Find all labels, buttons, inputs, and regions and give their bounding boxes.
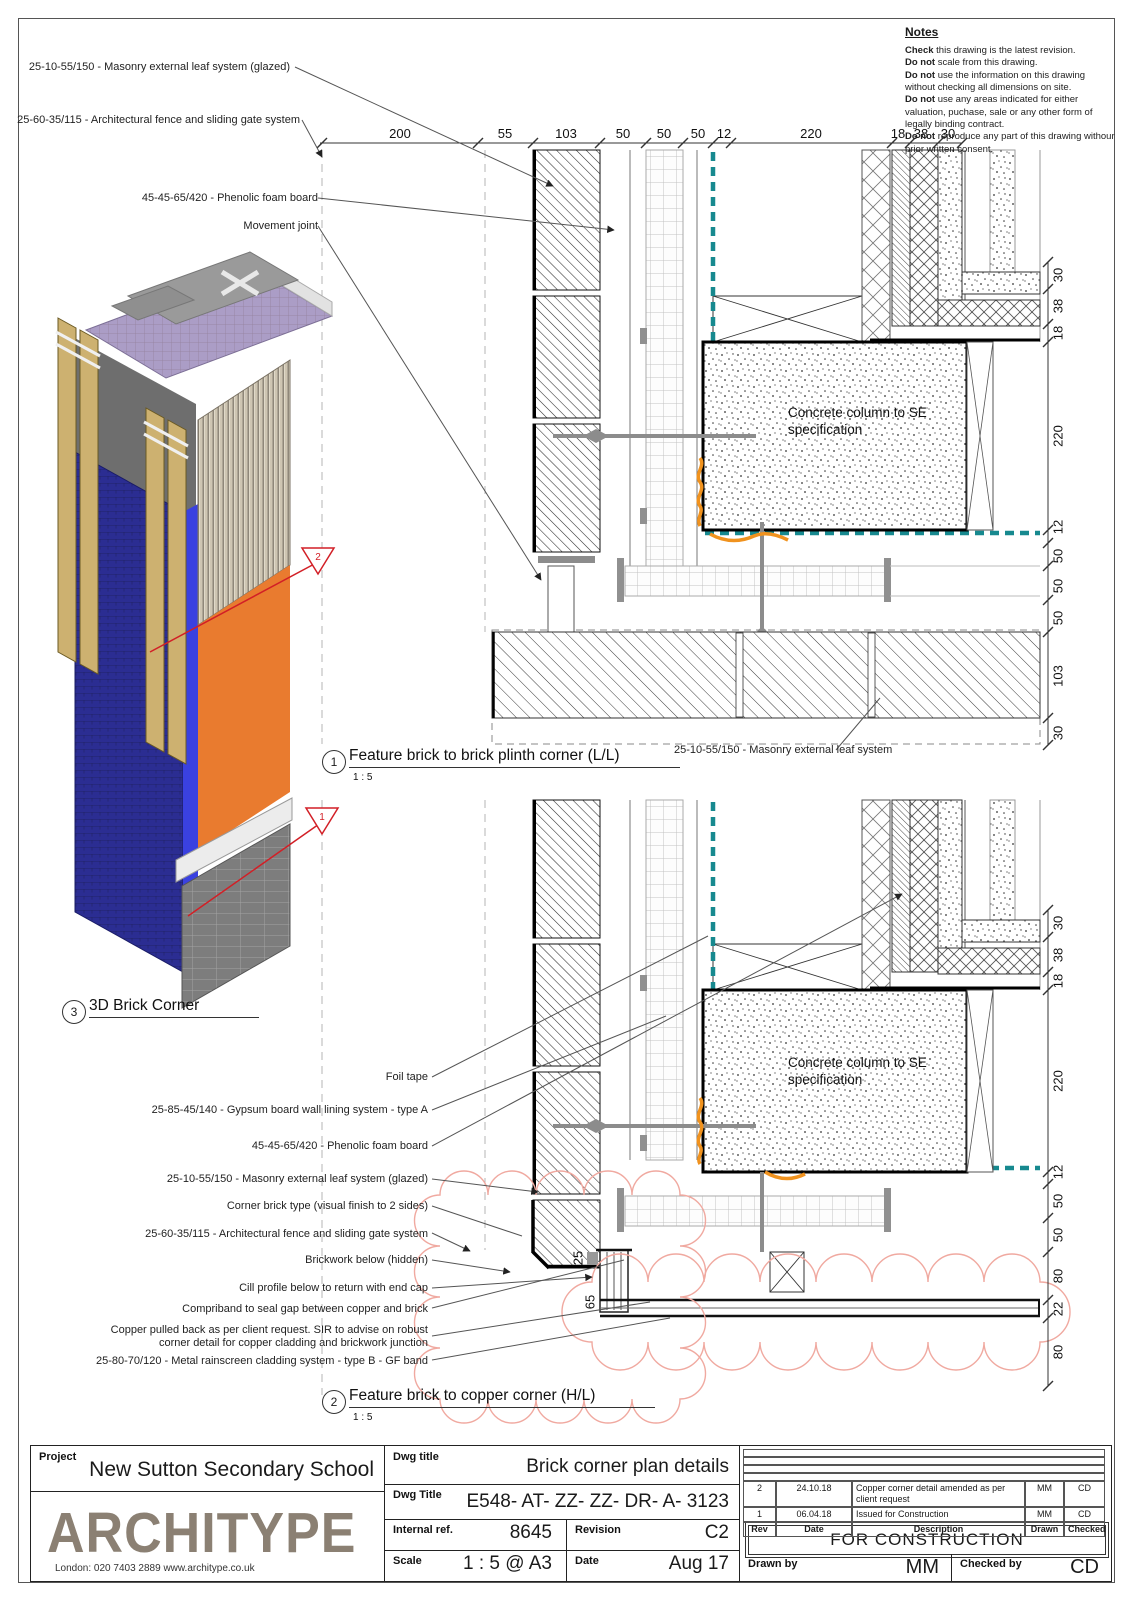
dim: 12 — [1051, 1165, 1066, 1179]
dim: 50 — [1051, 579, 1066, 593]
section-flag-upper: 2 — [315, 552, 321, 563]
detail1-scale: 1 : 5 — [353, 772, 372, 783]
checked-by-value: CD — [1070, 1556, 1099, 1579]
rev-row-cell: 24.10.18 — [776, 1481, 852, 1507]
revision-label: Revision — [575, 1524, 621, 1536]
scale-value: 1 : 5 @ A3 — [463, 1553, 552, 1575]
dim: 18 — [1051, 326, 1066, 340]
note-line: Do not use the information on this drawi… — [905, 70, 1117, 95]
dim: 80 — [1051, 1269, 1066, 1283]
rev-row-cell: Issued for Construction — [852, 1507, 1025, 1522]
architype-logo: ARCHITYPE — [47, 1501, 356, 1566]
label-fence: 25-60-35/115 - Architectural fence and s… — [145, 1228, 428, 1241]
date-label: Date — [575, 1555, 599, 1567]
detail2-number: 2 — [322, 1390, 346, 1414]
notes-panel: Notes Check this drawing is the latest r… — [905, 25, 1117, 156]
rev-row-cell: Copper corner detail amended as per clie… — [852, 1481, 1025, 1507]
project-label: Project — [39, 1451, 76, 1463]
rev-row-cell: 2 — [743, 1481, 776, 1507]
dim: 22 — [1051, 1302, 1066, 1316]
detail1-number: 1 — [322, 750, 346, 774]
dim: 220 — [800, 126, 822, 141]
concrete-column-note: Concrete column to SE specification — [788, 405, 968, 439]
label-phenolic: 45-45-65/420 - Phenolic foam board — [252, 1140, 428, 1153]
dim: 50 — [691, 126, 705, 141]
iso-brick-corner: 2 1 — [56, 252, 338, 1008]
dim: 18 — [1051, 974, 1066, 988]
dim: 30 — [1051, 726, 1066, 740]
dwg-no-label: Dwg Title — [393, 1489, 442, 1501]
rev-header: Rev — [743, 1522, 776, 1537]
rev-header: Drawn — [1025, 1522, 1064, 1537]
concrete-column-note: Concrete column to SE specification — [788, 1055, 968, 1089]
dwg-no: E548- AT- ZZ- ZZ- DR- A- 3123 — [466, 1491, 729, 1513]
rev-row-cell: MM — [1025, 1481, 1064, 1507]
drawing-sheet: 2 1 Notes Check this drawing is the late… — [0, 0, 1132, 1600]
label-phenolic: 45-45-65/420 - Phenolic foam board — [142, 192, 318, 205]
rev-row-cell: 1 — [743, 1507, 776, 1522]
dim: 50 — [1051, 1228, 1066, 1242]
label-copper-note: Copper pulled back as per client request… — [98, 1324, 428, 1349]
label-compriband: Compriband to seal gap between copper an… — [182, 1303, 428, 1316]
rev-row-cell: CD — [1064, 1507, 1105, 1522]
note-line: Do not reproduce any part of this drawin… — [905, 131, 1117, 156]
dim: 80 — [1051, 1345, 1066, 1359]
notes-title: Notes — [905, 25, 1117, 39]
label-masonry-glazed: 25-10-55/150 - Masonry external leaf sys… — [167, 1173, 428, 1186]
detail2-scale: 1 : 5 — [353, 1412, 372, 1423]
note-line: Check this drawing is the latest revisio… — [905, 45, 1117, 57]
dim: 103 — [1051, 665, 1066, 687]
rev-header: Checked — [1064, 1522, 1105, 1537]
label-foil-tape: Foil tape — [386, 1071, 428, 1084]
label-masonry-leaf: 25-10-55/150 - Masonry external leaf sys… — [674, 744, 892, 757]
dim: 50 — [1051, 1194, 1066, 1208]
dim: 12 — [1051, 520, 1066, 534]
project-cell: Project New Sutton Secondary School — [31, 1446, 384, 1492]
label-movement-joint: Movement joint — [243, 220, 318, 233]
rev-row-cell: MM — [1025, 1507, 1064, 1522]
internal-ref-label: Internal ref. — [393, 1524, 453, 1536]
revision-value: C2 — [705, 1522, 729, 1544]
project-name: New Sutton Secondary School — [89, 1458, 374, 1482]
drawn-by-label: Drawn by — [748, 1558, 798, 1570]
dim: 65 — [583, 1295, 598, 1309]
detail2-title: Feature brick to copper corner (H/L) — [349, 1387, 655, 1408]
internal-ref: 8645 — [510, 1522, 552, 1544]
label-masonry-glazed: 25-10-55/150 - Masonry external leaf sys… — [29, 61, 290, 74]
dim: 18 — [891, 126, 905, 141]
dim: 50 — [616, 126, 630, 141]
rev-header: Description — [852, 1522, 1025, 1537]
detail2-geometry — [322, 800, 1070, 1423]
label-gypsum: 25-85-45/140 - Gypsum board wall lining … — [152, 1104, 428, 1117]
note-line: Do not scale from this drawing. — [905, 57, 1117, 69]
dwg-title-label: Dwg title — [393, 1451, 439, 1463]
dim: 200 — [389, 126, 411, 141]
dim: 55 — [498, 126, 512, 141]
logo-contact: London: 020 7403 2889 www.architype.co.u… — [55, 1563, 255, 1574]
revision-cloud — [562, 1254, 1070, 1370]
dim: 38 — [1051, 299, 1066, 313]
dim: 30 — [1051, 916, 1066, 930]
checked-by-label: Checked by — [960, 1558, 1022, 1570]
dim: 50 — [657, 126, 671, 141]
dwg-title: Brick corner plan details — [526, 1456, 729, 1478]
dim: 50 — [1051, 549, 1066, 563]
label-rainscreen: 25-80-70/120 - Metal rainscreen cladding… — [96, 1355, 428, 1368]
drawn-checked-row: Drawn by MM Checked by CD — [739, 1554, 1111, 1581]
detail3-number: 3 — [62, 1000, 86, 1024]
section-flag-lower: 1 — [319, 812, 325, 823]
dim: 38 — [1051, 948, 1066, 962]
date-value: Aug 17 — [669, 1553, 729, 1575]
detail1-title: Feature brick to brick plinth corner (L/… — [349, 747, 680, 768]
dim: 50 — [1051, 611, 1066, 625]
dim: 12 — [717, 126, 731, 141]
rev-row-cell: 06.04.18 — [776, 1507, 852, 1522]
detail3-title: 3D Brick Corner — [89, 997, 259, 1018]
label-brickwork-below: Brickwork below (hidden) — [305, 1254, 428, 1267]
rev-row-cell: CD — [1064, 1481, 1105, 1507]
dim: 30 — [1051, 268, 1066, 282]
label-corner-brick: Corner brick type (visual finish to 2 si… — [227, 1200, 428, 1213]
label-fence: 25-60-35/115 - Architectural fence and s… — [17, 114, 300, 127]
rev-header: Date — [776, 1522, 852, 1537]
label-cill: Cill profile below to return with end ca… — [239, 1282, 428, 1295]
scale-label: Scale — [393, 1555, 422, 1567]
dim: 103 — [555, 126, 577, 141]
dim: 220 — [1051, 1070, 1066, 1092]
note-line: Do not use any areas indicated for eithe… — [905, 94, 1117, 131]
revision-table: 2 24.10.18 Copper corner detail amended … — [743, 1449, 1105, 1537]
dim: 220 — [1051, 425, 1066, 447]
dim: 25 — [571, 1251, 586, 1265]
drawn-by-value: MM — [906, 1556, 939, 1579]
title-block: Project New Sutton Secondary School ARCH… — [30, 1445, 1112, 1582]
